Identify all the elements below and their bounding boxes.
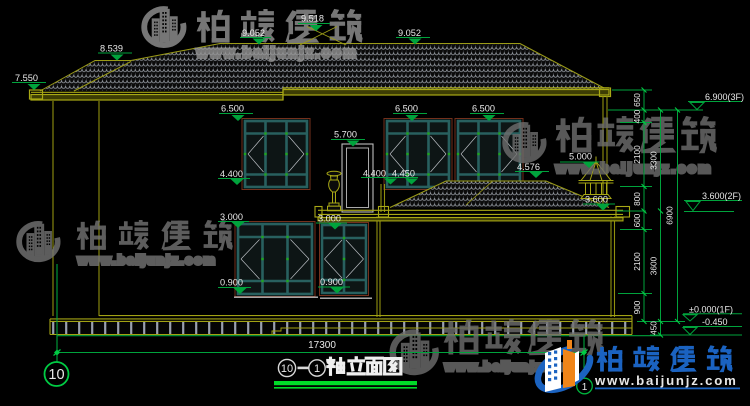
svg-text:800: 800 (632, 192, 642, 206)
svg-text:6900: 6900 (665, 206, 675, 225)
svg-text:900: 900 (632, 300, 642, 314)
svg-text:400: 400 (632, 109, 642, 123)
svg-text:1: 1 (314, 363, 320, 375)
svg-text:4.450: 4.450 (392, 169, 415, 179)
svg-text:5.000: 5.000 (569, 152, 592, 162)
svg-text:www.baijunjz.com: www.baijunjz.com (196, 45, 358, 60)
svg-text:17300: 17300 (308, 340, 336, 351)
svg-text:1: 1 (582, 382, 588, 393)
svg-text:2100: 2100 (632, 252, 642, 271)
svg-text:3300: 3300 (649, 151, 659, 170)
svg-text:www.baijunjz.com: www.baijunjz.com (77, 253, 217, 267)
svg-text:9.518: 9.518 (301, 14, 324, 24)
svg-text:-0.450: -0.450 (702, 317, 728, 327)
svg-text:450: 450 (649, 321, 659, 335)
svg-text:3.000: 3.000 (220, 212, 243, 222)
svg-text:650: 650 (632, 93, 642, 107)
svg-text:6.900(3F): 6.900(3F) (705, 92, 744, 102)
svg-text:6.500: 6.500 (221, 104, 244, 114)
svg-text:8.539: 8.539 (100, 44, 123, 54)
svg-text:600: 600 (632, 213, 642, 227)
svg-text:4.400: 4.400 (220, 169, 243, 179)
svg-text:9.052: 9.052 (242, 28, 265, 38)
svg-text:3.600(2F): 3.600(2F) (702, 191, 741, 201)
svg-text:3.600: 3.600 (585, 195, 608, 205)
svg-text:0.900: 0.900 (220, 278, 243, 288)
svg-text:3600: 3600 (649, 256, 659, 275)
svg-text:2100: 2100 (632, 145, 642, 164)
svg-text:4.400: 4.400 (363, 169, 386, 179)
svg-text:9.052: 9.052 (398, 28, 421, 38)
svg-text:3.000: 3.000 (318, 214, 341, 224)
svg-text:6.500: 6.500 (472, 104, 495, 114)
svg-text:www.baijunjz.com: www.baijunjz.com (594, 373, 738, 388)
svg-text:10: 10 (48, 367, 64, 383)
svg-text:±0.000(1F): ±0.000(1F) (689, 304, 733, 314)
svg-text:6.500: 6.500 (395, 104, 418, 114)
svg-text:4.576: 4.576 (517, 162, 540, 172)
svg-text:7.550: 7.550 (15, 73, 38, 83)
svg-text:10: 10 (281, 363, 293, 375)
svg-text:0.900: 0.900 (320, 277, 343, 287)
svg-text:5.700: 5.700 (334, 130, 357, 140)
